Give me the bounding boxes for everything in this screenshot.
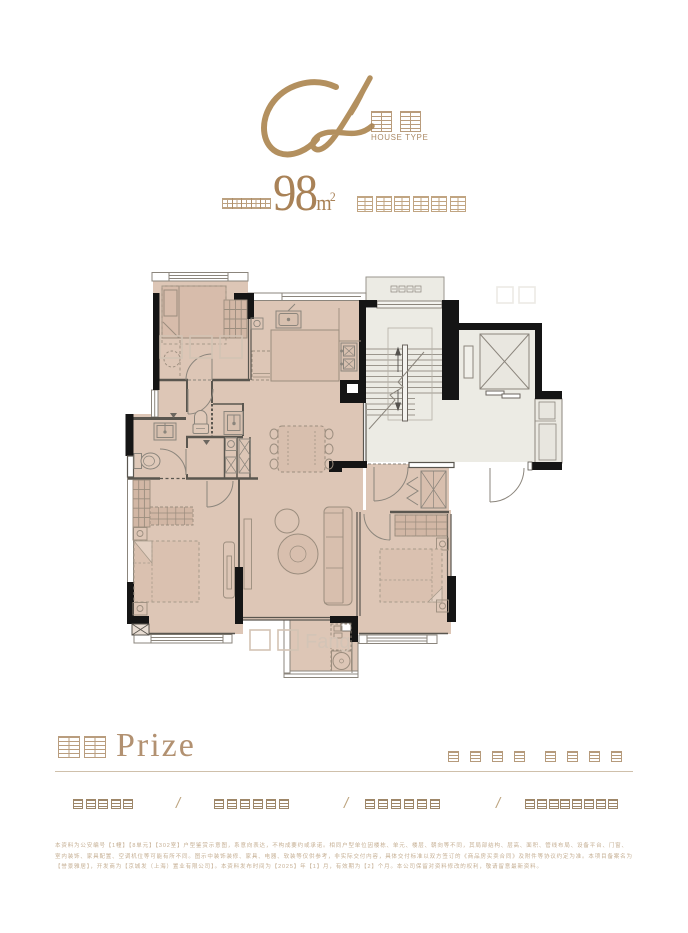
svg-text:Fang: Fang bbox=[305, 631, 351, 653]
